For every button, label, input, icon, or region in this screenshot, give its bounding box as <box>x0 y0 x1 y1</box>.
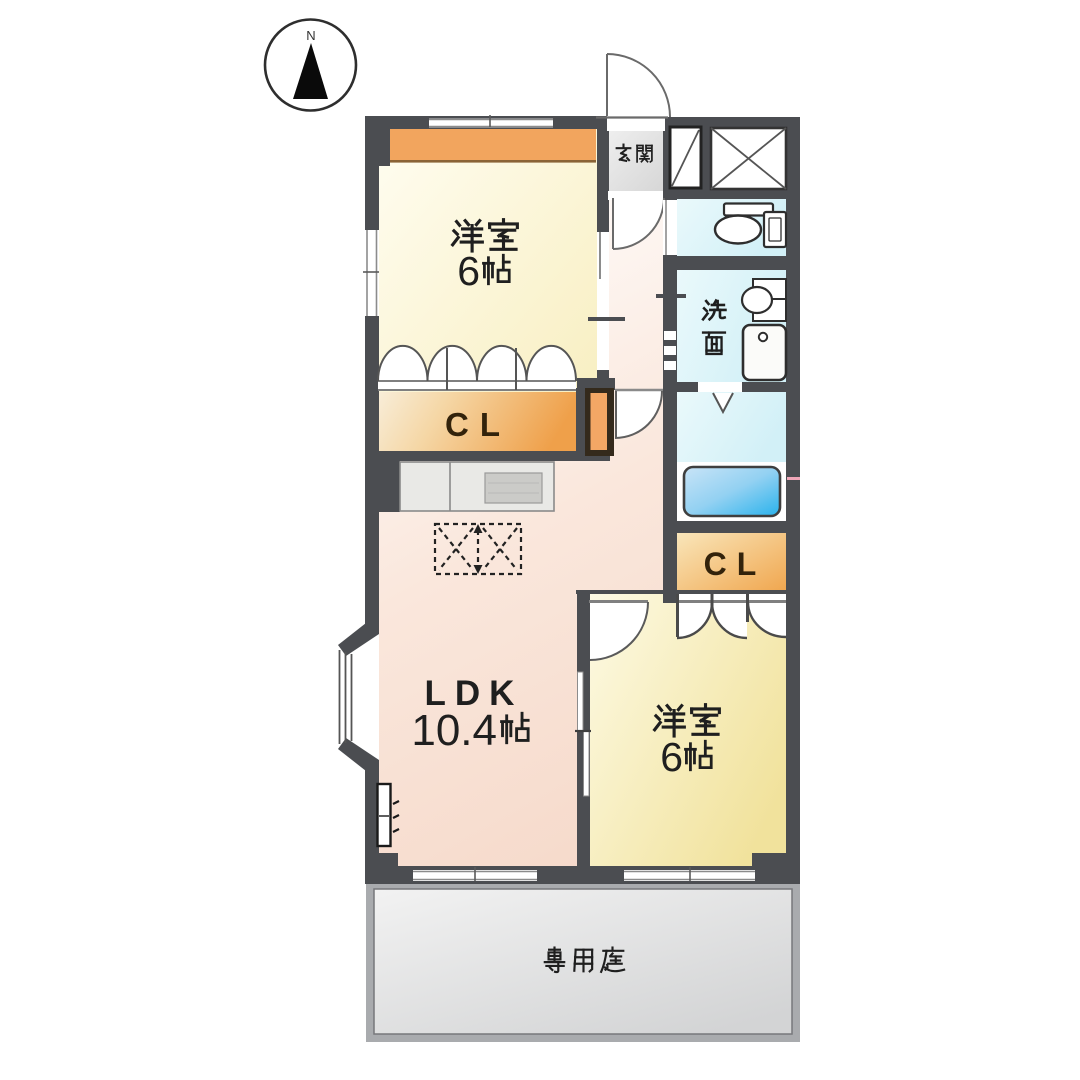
svg-text:N: N <box>306 28 315 43</box>
svg-text:CL: CL <box>445 406 511 443</box>
svg-text:CL: CL <box>704 546 767 582</box>
svg-text:10.4: 10.4 <box>411 706 497 755</box>
svg-text:6: 6 <box>660 734 683 780</box>
svg-text:6: 6 <box>457 248 480 294</box>
